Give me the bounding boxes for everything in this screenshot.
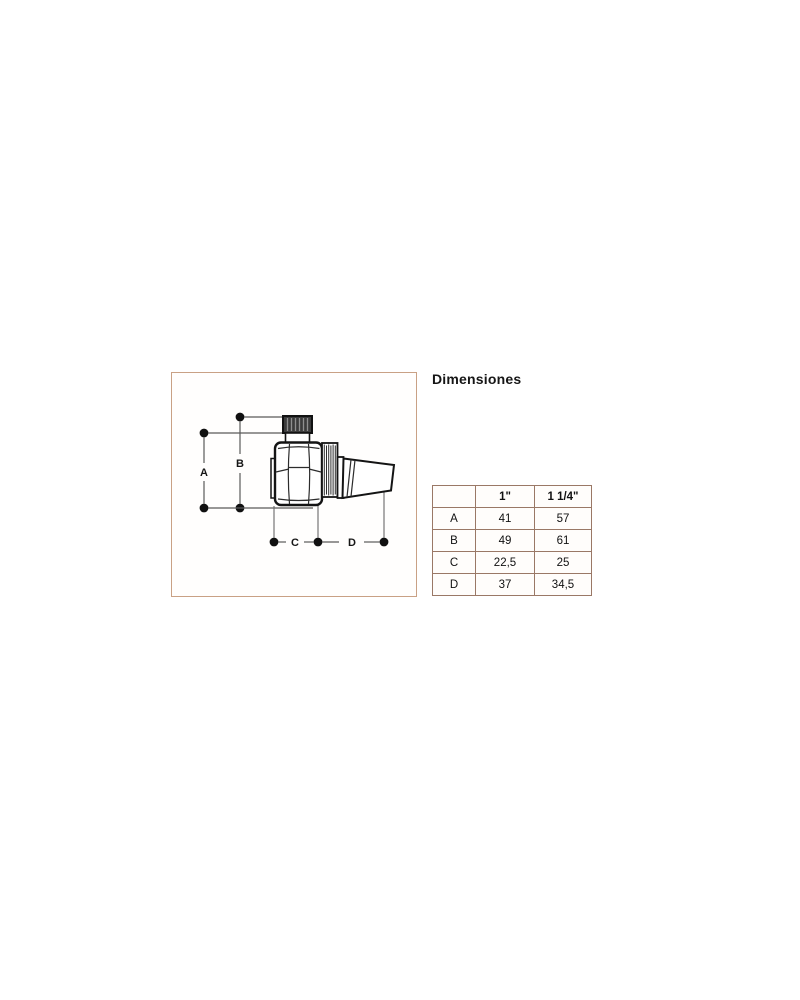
valve-diagram-panel: A B C D (171, 372, 417, 597)
dim-value-1in: 41 (476, 508, 535, 530)
dim-dot (380, 538, 389, 547)
dim-dot (200, 429, 209, 438)
dimensions-table: 1" 1 1/4" A 41 57 B 49 61 C 22,5 25 D 37… (432, 485, 592, 596)
dim-value-1in: 22,5 (476, 552, 535, 574)
table-row: D 37 34,5 (433, 574, 592, 596)
valve-neck (286, 433, 310, 443)
dim-label-c: C (291, 537, 299, 549)
table-header-row: 1" 1 1/4" (433, 486, 592, 508)
dim-row-label: C (433, 552, 476, 574)
table-header-blank (433, 486, 476, 508)
dim-label-a: A (200, 467, 208, 479)
valve-hex-body (275, 443, 322, 506)
dim-dot (200, 504, 209, 513)
dim-row-label: D (433, 574, 476, 596)
dimension-c-d: C D (270, 537, 389, 549)
dim-row-label: B (433, 530, 476, 552)
valve-drawing (271, 416, 394, 505)
dim-value-114in: 61 (535, 530, 592, 552)
dim-label-b: B (236, 458, 244, 470)
table-row: B 49 61 (433, 530, 592, 552)
table-row: A 41 57 (433, 508, 592, 530)
dim-value-114in: 57 (535, 508, 592, 530)
table-header-1-1-4in: 1 1/4" (535, 486, 592, 508)
dim-value-1in: 37 (476, 574, 535, 596)
dim-value-114in: 34,5 (535, 574, 592, 596)
page-title: Dimensiones (432, 371, 521, 387)
dim-row-label: A (433, 508, 476, 530)
dim-dot (236, 413, 245, 422)
valve-technical-drawing: A B C D (172, 373, 415, 595)
dim-value-114in: 25 (535, 552, 592, 574)
table-row: C 22,5 25 (433, 552, 592, 574)
dim-dot (270, 538, 279, 547)
table-header-1in: 1" (476, 486, 535, 508)
dim-label-d: D (348, 537, 356, 549)
dim-dot (314, 538, 323, 547)
dim-value-1in: 49 (476, 530, 535, 552)
